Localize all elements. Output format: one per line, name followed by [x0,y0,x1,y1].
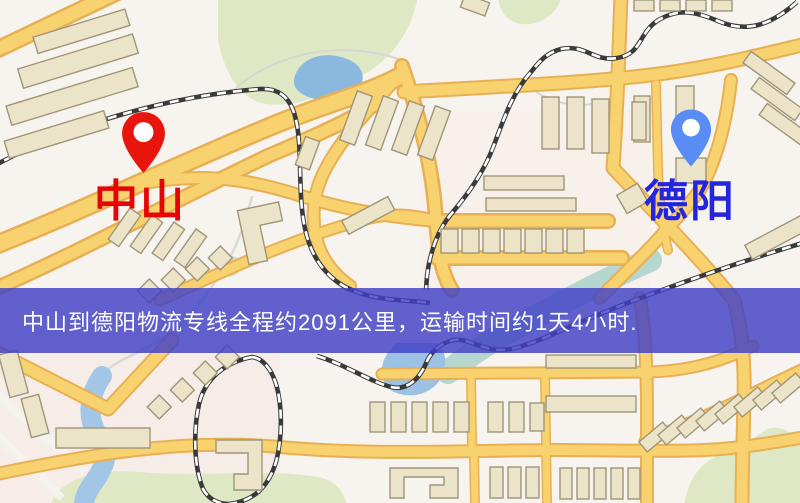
destination-pin-icon[interactable] [669,108,713,168]
destination-label: 德阳 [644,180,736,224]
origin-pin-icon[interactable] [120,110,167,175]
street-map [0,0,800,503]
map-view[interactable]: 中山 德阳 中山到德阳物流专线全程约2091公里，运输时间约1天4小时. [0,0,800,503]
route-info-banner: 中山到德阳物流专线全程约2091公里，运输时间约1天4小时. [0,288,800,353]
route-info-text: 中山到德阳物流专线全程约2091公里，运输时间约1天4小时. [0,305,638,337]
destination-pin-shape [671,110,711,167]
origin-pin-shape [122,112,165,173]
origin-label: 中山 [94,180,186,224]
